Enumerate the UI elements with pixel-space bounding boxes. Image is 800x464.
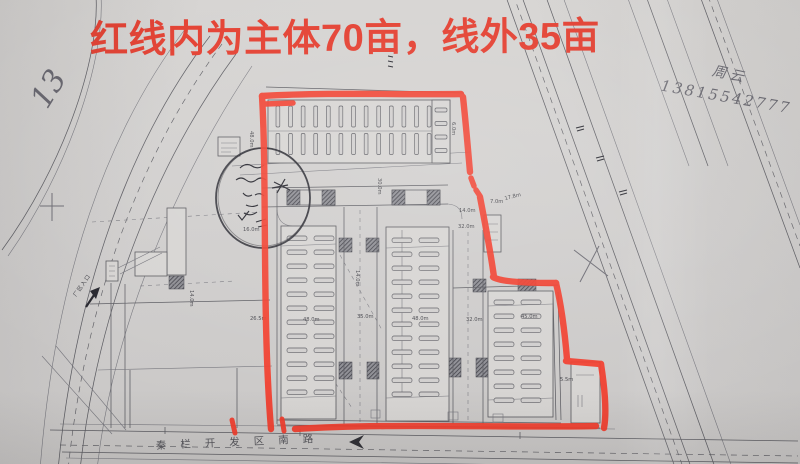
road-annotation-marks <box>576 126 627 195</box>
survey-cross-mark <box>40 193 64 221</box>
dimension-label: 7.0m <box>490 199 503 205</box>
dimension-label: 5.5m <box>560 377 573 383</box>
dimension-label: 14.0m <box>188 290 194 307</box>
dimension-label: 6.0m <box>450 122 456 135</box>
dimension-label: 14.0m <box>459 208 476 214</box>
dimension-label: 16.0m <box>243 227 260 233</box>
red-annotation-text: 红线内为主体70亩，线外35亩 <box>90 4 790 64</box>
dimension-label: 32.0m <box>458 224 475 230</box>
site-plan-drawing: 秦栏开发区南路 <box>0 0 800 464</box>
office-building <box>167 208 186 275</box>
workshop-buildings <box>276 106 553 422</box>
dimension-label: 32.0m <box>466 317 483 323</box>
road-name-label: 秦栏开发区南路 <box>156 432 328 452</box>
dimension-label: 30.0m <box>376 178 382 195</box>
dimension-label: 35.0m <box>357 314 374 320</box>
dimension-label: 45.0m <box>521 314 538 320</box>
dimension-label: 48.0m <box>412 316 429 322</box>
road-arrow-mark <box>349 435 364 449</box>
pencil-x-mark <box>574 246 608 282</box>
dimension-label: 14.0m <box>354 270 360 287</box>
north-warehouse-outline <box>268 100 450 163</box>
entrance-label: 厂区入口 <box>72 273 93 298</box>
photo-of-site-plan: 秦栏开发区南路 <box>0 0 800 464</box>
south-road: 秦栏开发区南路 <box>50 424 798 464</box>
dimension-label: 48.0m <box>248 131 254 148</box>
dimension-label: 48.0m <box>303 317 320 323</box>
dimension-label: 17.8m <box>504 192 522 202</box>
west-buildings-and-gate: 厂区入口 <box>42 208 272 434</box>
small-utility-box <box>218 137 240 156</box>
